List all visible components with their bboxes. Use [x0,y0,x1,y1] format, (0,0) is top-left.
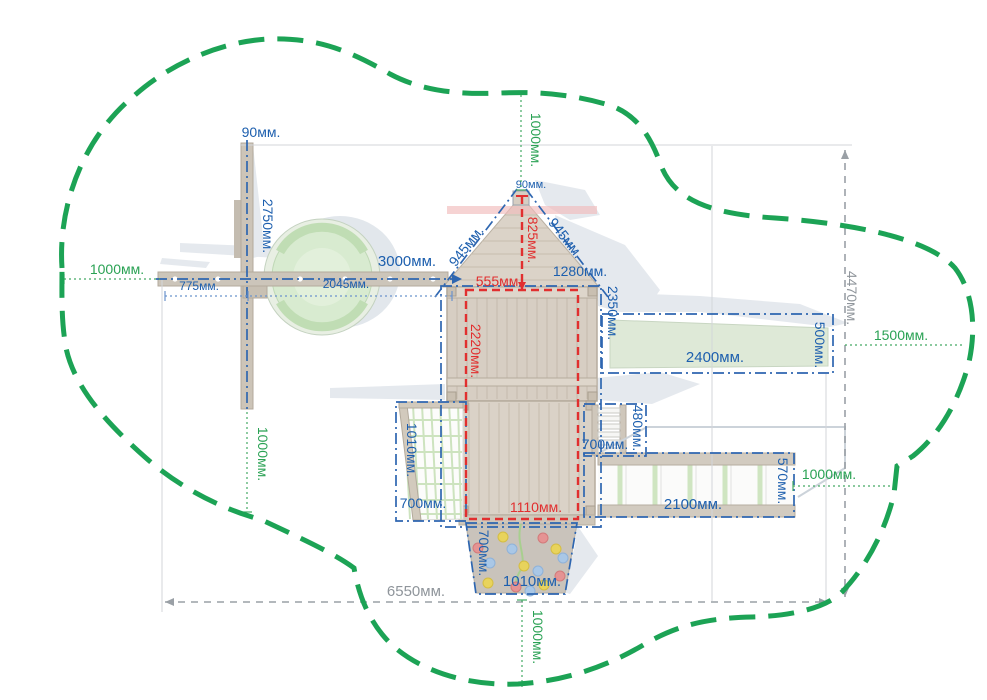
dim-roof-height: 825мм. [525,217,541,264]
upper-deck-bottom-rail [447,378,597,386]
dim-pole-width: 90мм. [242,124,281,140]
clearance-top: 1000мм. [528,113,544,167]
clearance-bars-right: 1000мм. [802,466,856,482]
clearance-pole-bottom: 1000мм. [255,427,271,481]
dim-slide-width: 500мм. [812,322,828,369]
dim-beam-length: 3000мм. [378,253,436,270]
swing-assembly [158,143,448,409]
dim-net-height: 1010мм. [404,423,420,477]
dim-top-opening: 555мм. [476,273,523,289]
dim-zone-width: 6550мм. [387,583,445,600]
playground-plan-drawing: 6550мм. 4470мм. 90мм. 2750мм. 3000мм. 77… [0,0,987,700]
dim-offset-left: 775мм. [179,279,219,293]
dim-pole-height: 2750мм. [260,199,276,253]
dim-finial-width: 90мм. [516,179,546,191]
clearance-bottom: 1000мм. [530,610,546,664]
pole-side-tab [234,200,241,258]
dim-monkey-width: 570мм. [775,458,791,505]
dim-slide-length: 2400мм. [686,349,744,366]
clearance-right: 1500мм. [874,327,928,343]
dim-frame-height: 2220мм. [468,324,484,378]
dim-net-width: 700мм. [400,495,447,511]
dim-frame-width: 1110мм. [510,499,562,515]
dim-side-height: 2350мм. [605,286,621,340]
clearance-left: 1000мм. [90,261,144,277]
dim-monkey-length: 2100мм. [664,496,722,513]
dim-steps-depth: 480мм. [630,405,646,452]
dim-zone-height: 4470мм. [844,271,860,325]
plan-svg: 6550мм. 4470мм. 90мм. 2750мм. 3000мм. 77… [0,0,987,700]
dim-wall-width: 1010мм. [503,573,561,590]
monkey-bars-near-rail [598,453,795,465]
dim-steps-width: 700мм. [582,436,629,452]
dim-upper-width: 1280мм. [553,263,607,279]
dim-wall-height: 700мм. [476,530,492,577]
dim-beam-inner: 2045мм. [323,277,370,291]
net-top-rail [399,402,463,408]
